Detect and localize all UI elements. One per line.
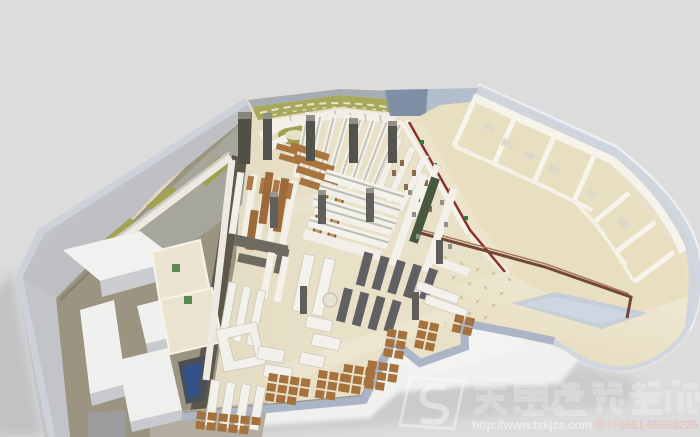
svg-text:http://www.tskjzs.com: http://www.tskjzs.com (472, 418, 592, 432)
svg-text:: 0551-65568226: : 0551-65568226 (612, 418, 698, 432)
